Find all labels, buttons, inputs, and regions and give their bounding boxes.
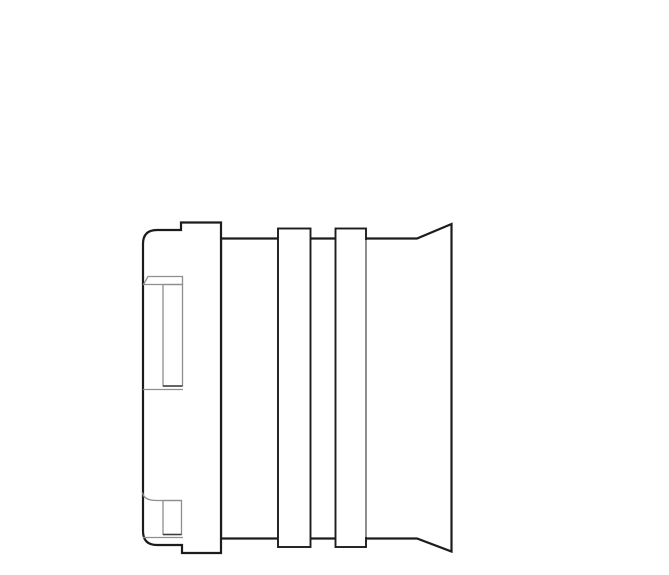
rib-1 (278, 229, 311, 548)
connector-technical-drawing (0, 0, 669, 575)
drawing-canvas (0, 0, 669, 575)
rib-2 (336, 229, 367, 548)
